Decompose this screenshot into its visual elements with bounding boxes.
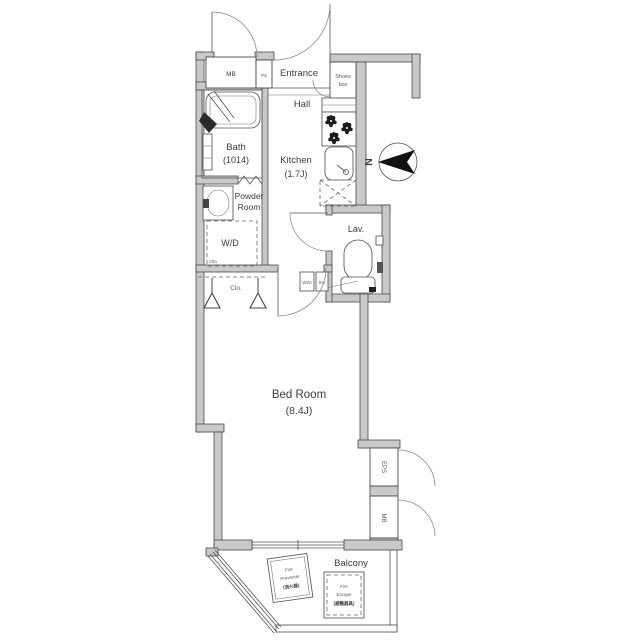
kitchen: Kitchen (1.7J)	[280, 98, 356, 206]
balcony-window	[252, 540, 344, 550]
floor-plan-page: MB PS Entrance Shoes box Hall Bath (101	[0, 0, 640, 640]
lavatory-door-arc	[290, 213, 328, 251]
eps-label: EPS	[380, 461, 386, 473]
wall-bedroom-left-jog	[196, 424, 224, 432]
lavatory: Lav. W20 5%	[290, 213, 383, 293]
wall-lav-bottom	[326, 294, 390, 302]
entrance-label: Entrance	[280, 68, 318, 79]
washer-dryer-sub-label: 20a	[209, 259, 217, 264]
wall-bedroom-right	[360, 294, 368, 448]
powder-room-label-1: Powder	[235, 191, 264, 201]
balcony-label: Balcony	[334, 558, 368, 569]
shoes-box: Shoes box	[330, 62, 356, 98]
shoes-box-label-2: box	[339, 82, 348, 88]
compass: N	[362, 143, 417, 181]
bath-counter	[203, 134, 212, 170]
fire-hatch-2-label-3: (避難器具)	[334, 600, 355, 607]
wall-top-right	[330, 54, 420, 62]
meter-box-right-label: MB	[380, 514, 386, 523]
hanger-icon	[204, 278, 220, 308]
floor-plan-drawing: MB PS Entrance Shoes box Hall Bath (101	[0, 0, 640, 640]
refrigerator-space	[320, 180, 356, 206]
wall-left	[196, 52, 204, 432]
shoes-box-door-arc	[313, 80, 330, 97]
fire-hatch-1: Fire Preventer (消火器)	[267, 553, 313, 602]
fixture-w20-label: W20	[302, 280, 312, 285]
eps-shaft: EPS	[370, 448, 435, 486]
meter-box-top: MB	[206, 12, 257, 88]
balcony-diagonal-rail-1	[208, 556, 274, 633]
bath-folding-door	[238, 176, 262, 184]
wall-bedroom-bottom-left	[214, 540, 252, 550]
hanger-icon	[250, 278, 266, 308]
wall-lav-top	[326, 205, 390, 213]
powder-sink-faucet	[203, 199, 209, 208]
pipe-space: PS	[256, 60, 272, 88]
north-arrow-icon	[378, 150, 415, 174]
powder-room-label-2: Room	[238, 202, 261, 212]
entrance: Entrance	[268, 4, 330, 97]
hall-label: Hall	[294, 99, 310, 110]
meter-box-right-door-arc	[398, 500, 435, 536]
shoes-box-label-1: Shoes	[335, 74, 351, 80]
meter-box-right: MB	[370, 496, 435, 538]
wall-bath-powder-right	[262, 88, 268, 268]
kitchen-size-label: (1.7J)	[284, 169, 307, 179]
shoes-box-outline	[330, 62, 356, 98]
wall-kitchen-right	[356, 62, 366, 212]
wall-bedroom-left-lower	[214, 432, 222, 548]
bath-label: Bath	[226, 142, 246, 153]
wall-lav-left-upper	[326, 205, 332, 215]
balcony-bottom-rail	[276, 625, 397, 632]
bath-size-label: (1014)	[223, 155, 249, 165]
toilet-bowl	[344, 240, 372, 280]
wall-bedroom-bottom-right	[344, 540, 402, 550]
entrance-door-arc	[274, 4, 330, 60]
toilet-fitting	[369, 287, 376, 292]
fire-hatch-2: Fire Escape (避難器具)	[324, 572, 364, 618]
meter-box-door-arc	[212, 12, 257, 57]
bedroom-label: Bed Room	[272, 389, 326, 401]
fire-hatch-2-label-1: Fire	[340, 584, 348, 589]
balcony-diagonal-rail-2	[210, 554, 276, 631]
washer-dryer: W/D 20a	[207, 221, 257, 266]
closet-label: Clo.	[230, 285, 242, 292]
washer-dryer-label: W/D	[221, 238, 239, 248]
wall-hall-bedroom-stub	[324, 265, 332, 272]
kitchen-label: Kitchen	[280, 155, 312, 166]
compass-north-label: N	[362, 158, 374, 166]
meter-box-top-label: MB	[226, 71, 236, 78]
wall-eps-mb-divider	[370, 486, 398, 496]
eps-door-arc	[398, 450, 435, 486]
kitchen-sink	[325, 147, 353, 180]
wall-eps-top	[358, 440, 400, 448]
balcony: Balcony Fire Preventer (消火器) Fire Escape…	[208, 550, 397, 633]
closet: Clo.	[198, 277, 268, 308]
powder-room: Powder Room	[203, 186, 264, 220]
wall-top-mid	[255, 52, 274, 60]
toilet-control	[377, 262, 383, 273]
wall-lav-right	[382, 205, 390, 302]
lavatory-label: Lav.	[348, 224, 364, 234]
hall: Hall	[294, 99, 310, 110]
toilet-paper-holder	[376, 236, 383, 245]
pipe-space-label: PS	[261, 73, 267, 78]
bedroom-size-label: (8.4J)	[286, 405, 313, 417]
fire-hatch-2-label-2: Escape	[336, 592, 352, 597]
wall-top-right-stub	[412, 54, 420, 98]
bath-room: Bath (1014)	[199, 90, 262, 184]
balcony-right-rail	[390, 550, 397, 632]
